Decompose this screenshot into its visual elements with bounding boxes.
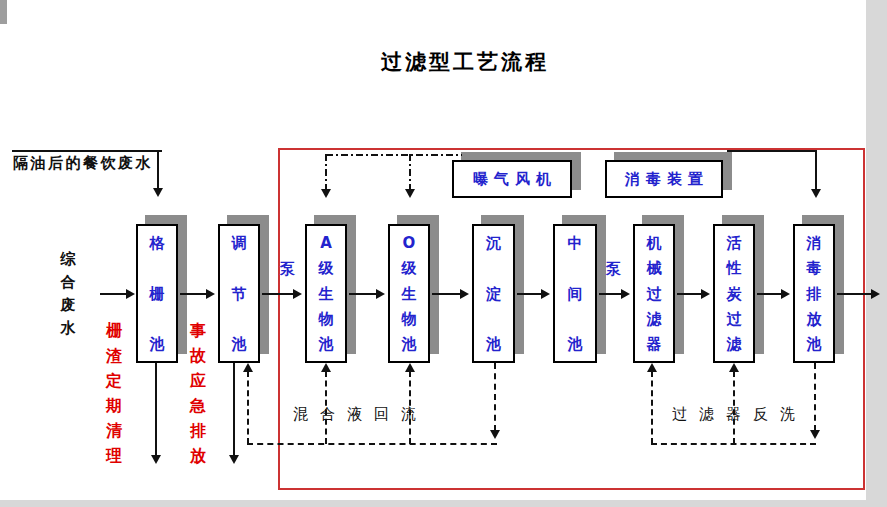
flow-arrowhead [376, 289, 385, 299]
aeration-line-drop-a [325, 154, 327, 190]
flow-arrowhead [781, 289, 790, 299]
process-flow-diagram: 过滤型工艺流程 隔油后的餐饮废水 综合废水 格栅池 调节池 A级生物池 O级生物… [0, 0, 887, 507]
grid-tank-drain-arrowhead [151, 455, 161, 464]
return-arrowhead-regulating [243, 363, 253, 372]
label-mixed-liquor-return: 混合液回流 [293, 405, 428, 424]
grid-tank-drain-line [155, 363, 157, 456]
backwash-riser-mechanical [651, 371, 653, 444]
disinfection-device-box: 消毒装置 [605, 160, 723, 198]
return-riser-regulating [247, 371, 249, 444]
pump-label-1: 泵 [280, 260, 295, 279]
flow-arrowhead-effluent [871, 289, 880, 299]
backwash-arrowhead-carbon [729, 363, 739, 372]
flow-line [517, 293, 542, 295]
aeration-fan-box: 曝气风机 [452, 160, 572, 198]
tank-activated-carbon: 活性炭过滤 [713, 224, 755, 363]
regulating-tank-drain-line [233, 363, 235, 456]
aeration-line-drop-o [409, 154, 411, 190]
tank-o-bio: O级生物池 [388, 224, 430, 363]
return-drop-sedimentation [494, 363, 496, 431]
return-arrowhead-o-bio [405, 363, 415, 372]
aeration-arrowhead-o [405, 189, 415, 198]
tank-disinfection-discharge: 消毒排放池 [793, 224, 835, 363]
flow-arrowhead [206, 289, 215, 299]
pump-label-2: 泵 [606, 260, 621, 279]
flow-line [180, 293, 207, 295]
note-grid-residue: 栅渣定期清理 [104, 318, 124, 468]
backwash-drop-arrowhead [810, 430, 820, 439]
flow-arrowhead [541, 289, 550, 299]
tank-grid: 格栅池 [136, 224, 178, 363]
influent-left-label: 综合废水 [58, 248, 78, 340]
return-arrowhead-a-bio [321, 363, 331, 372]
regulating-tank-drain-arrowhead [229, 455, 239, 464]
page-title: 过滤型工艺流程 [300, 48, 630, 76]
page-bottom-edge [0, 500, 887, 507]
disinfection-line-horizontal [727, 150, 817, 152]
flow-line [599, 293, 622, 295]
label-filter-backwash: 过滤器反洗 [672, 405, 807, 424]
return-line-horizontal [247, 443, 497, 445]
flow-arrowhead [126, 289, 135, 299]
aeration-arrowhead-a [321, 189, 331, 198]
page-right-edge [866, 0, 887, 507]
flow-line [262, 293, 294, 295]
flow-line [757, 293, 782, 295]
tank-sedimentation: 沉淀池 [472, 224, 515, 363]
flow-arrowhead [293, 289, 302, 299]
flow-line [349, 293, 377, 295]
page-corner-mark [0, 0, 7, 24]
flow-arrowhead [621, 289, 630, 299]
influent-top-overline [12, 150, 162, 152]
influent-top-arrowhead [153, 188, 163, 197]
influent-top-label: 隔油后的餐饮废水 [13, 154, 153, 173]
flow-arrowhead [460, 289, 469, 299]
disinfection-line-drop [815, 150, 817, 190]
flow-line [677, 293, 702, 295]
flow-line [100, 293, 127, 295]
flow-line-effluent [837, 293, 872, 295]
backwash-drop-discharge [814, 363, 816, 431]
tank-mechanical-filter: 机械过滤器 [633, 224, 675, 363]
tank-a-bio: A级生物池 [305, 224, 347, 363]
tank-intermediate: 中间池 [553, 224, 597, 363]
note-emergency-discharge: 事故应急排放 [188, 318, 208, 468]
aeration-line-horizontal [326, 154, 462, 156]
return-drop-arrowhead [490, 430, 500, 439]
backwash-arrowhead-mechanical [647, 363, 657, 372]
influent-top-drop-line [157, 151, 159, 189]
disinfection-arrowhead [811, 189, 821, 198]
tank-regulating: 调节池 [218, 224, 260, 363]
flow-arrowhead [701, 289, 710, 299]
flow-line [432, 293, 461, 295]
